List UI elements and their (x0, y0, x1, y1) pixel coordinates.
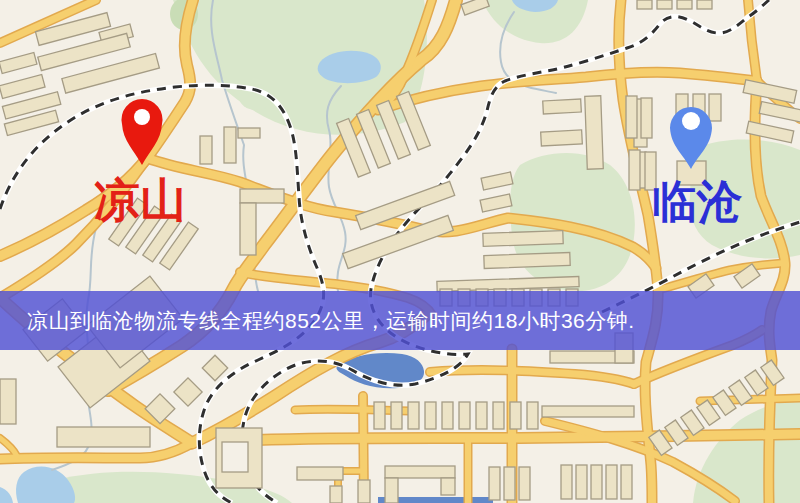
map-canvas (0, 0, 800, 503)
map-screenshot: 凉山 临沧 凉山到临沧物流专线全程约852公里，运输时间约18小时36分钟. (0, 0, 800, 503)
route-info-banner: 凉山到临沧物流专线全程约852公里，运输时间约18小时36分钟. (0, 291, 800, 350)
banner-text: 凉山到临沧物流专线全程约852公里，运输时间约18小时36分钟. (27, 291, 635, 350)
